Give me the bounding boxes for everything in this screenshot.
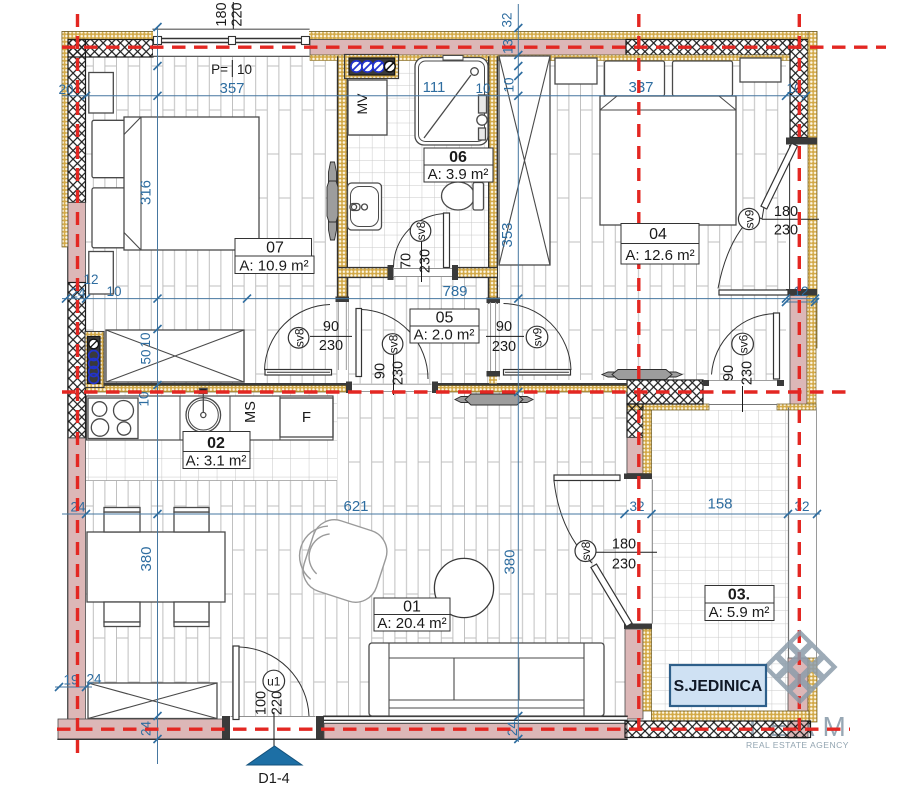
svg-text:A: 3.1 m²: A: 3.1 m²	[186, 453, 247, 470]
svg-text:90: 90	[496, 319, 512, 335]
svg-text:316: 316	[138, 180, 155, 205]
svg-text:32: 32	[629, 499, 644, 514]
svg-text:789: 789	[442, 283, 467, 300]
svg-text:10: 10	[137, 391, 152, 406]
svg-text:90: 90	[323, 319, 339, 335]
svg-text:sv9: sv9	[743, 209, 757, 228]
svg-text:03.: 03.	[728, 587, 750, 604]
svg-text:sv9: sv9	[531, 327, 545, 346]
svg-text:10: 10	[237, 62, 252, 77]
svg-text:D1-4: D1-4	[258, 771, 289, 787]
svg-text:32: 32	[794, 499, 809, 514]
svg-text:220: 220	[230, 2, 246, 26]
svg-text:A: 2.0 m²: A: 2.0 m²	[414, 327, 475, 344]
svg-text:sv8: sv8	[414, 221, 428, 240]
svg-text:230: 230	[391, 361, 407, 385]
svg-text:10: 10	[138, 332, 153, 347]
svg-text:P=: P=	[211, 62, 228, 77]
svg-text:90: 90	[721, 365, 737, 381]
svg-text:621: 621	[343, 498, 368, 515]
svg-text:90: 90	[373, 363, 389, 379]
svg-text:230: 230	[612, 557, 636, 573]
svg-text:20: 20	[58, 82, 73, 97]
svg-text:05: 05	[436, 310, 454, 327]
svg-text:A: 5.9 m²: A: 5.9 m²	[709, 604, 770, 621]
svg-text:A: 10.9 m²: A: 10.9 m²	[239, 258, 308, 275]
svg-text:sv8: sv8	[292, 328, 306, 347]
svg-text:01: 01	[403, 599, 421, 616]
svg-text:230: 230	[740, 361, 756, 385]
svg-text:u1: u1	[267, 675, 281, 689]
svg-text:353: 353	[499, 222, 516, 247]
svg-text:111: 111	[423, 79, 446, 96]
svg-text:REAL ESTATE AGENCY: REAL ESTATE AGENCY	[746, 740, 849, 750]
svg-text:70: 70	[399, 253, 415, 269]
svg-text:180: 180	[774, 204, 798, 220]
svg-text:04: 04	[649, 226, 667, 243]
svg-text:A: 3.9 m²: A: 3.9 m²	[428, 166, 489, 183]
svg-text:32: 32	[500, 12, 515, 27]
svg-text:230: 230	[492, 339, 516, 355]
svg-text:50: 50	[139, 349, 154, 364]
svg-text:A: 20.4 m²: A: 20.4 m²	[377, 615, 446, 632]
svg-text:220: 220	[270, 691, 286, 715]
svg-text:100: 100	[254, 691, 270, 715]
svg-text:A: 12.6 m²: A: 12.6 m²	[625, 247, 694, 264]
svg-text:sv8: sv8	[579, 541, 593, 560]
svg-text:180: 180	[612, 537, 636, 553]
svg-text:MS: MS	[243, 401, 259, 423]
svg-text:380: 380	[502, 549, 519, 574]
svg-text:230: 230	[774, 223, 798, 239]
svg-text:158: 158	[707, 496, 732, 513]
svg-text:10: 10	[106, 284, 121, 299]
svg-text:10: 10	[475, 81, 490, 96]
svg-text:24: 24	[86, 672, 102, 687]
svg-text:380: 380	[138, 546, 155, 571]
svg-text:180: 180	[214, 2, 230, 26]
svg-text:230: 230	[319, 338, 343, 354]
svg-text:07: 07	[266, 240, 284, 257]
svg-text:357: 357	[219, 80, 244, 97]
svg-text:10: 10	[502, 77, 517, 92]
svg-text:230: 230	[418, 249, 434, 273]
svg-text:06: 06	[449, 149, 467, 166]
svg-text:12: 12	[83, 272, 98, 287]
svg-text:02: 02	[207, 435, 225, 452]
svg-text:S.JEDINICA: S.JEDINICA	[674, 678, 763, 695]
svg-text:337: 337	[628, 79, 653, 96]
svg-text:sv6: sv6	[736, 334, 750, 353]
svg-text:F: F	[302, 409, 311, 426]
svg-text:sv8: sv8	[386, 334, 400, 353]
